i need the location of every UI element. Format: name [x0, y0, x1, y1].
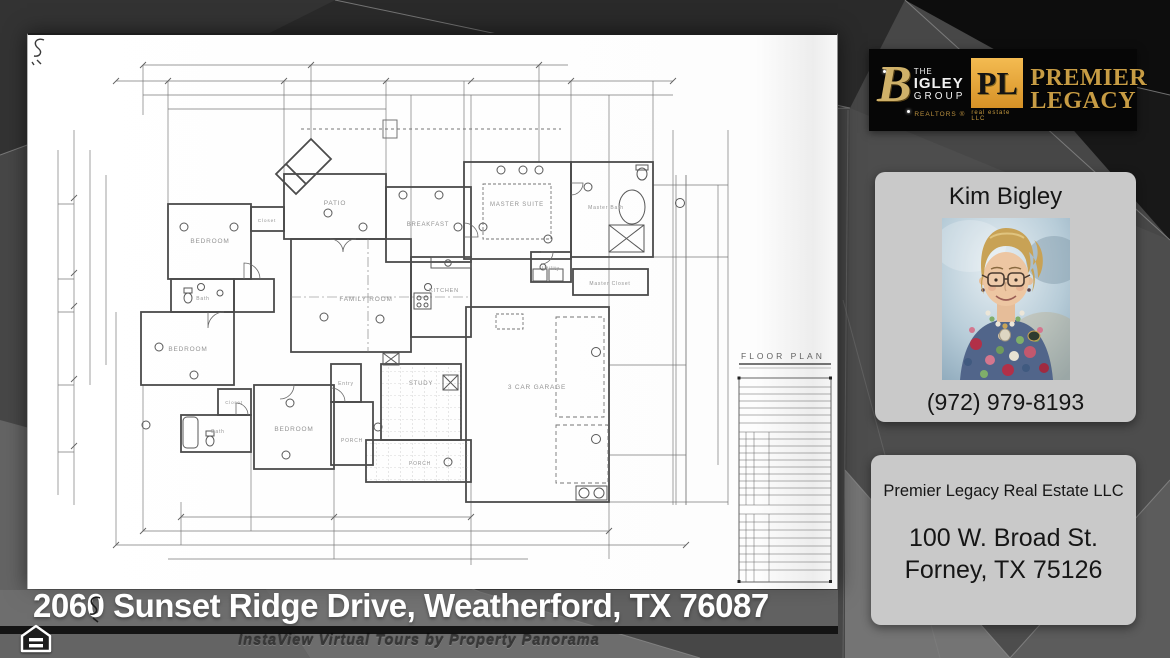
room-label: BEDROOM	[190, 238, 229, 245]
premier-legacy-monogram: PL real estate LLC	[971, 58, 1023, 122]
property-address: 2060 Sunset Ridge Drive, Weatherford, TX…	[33, 587, 769, 625]
room-label: Bath	[211, 429, 225, 435]
virtual-tour-frame: BEDROOM Closet Bath BEDROOM PATIO BREAKF…	[0, 0, 1170, 658]
agent-name: Kim Bigley	[875, 172, 1136, 211]
room-label: Closet	[258, 218, 276, 224]
room-label: Master Bath	[588, 205, 624, 211]
corner-mark-icon	[32, 39, 44, 65]
room-label: Entry	[338, 381, 354, 387]
watermark-text: InstaView Virtual Tours by Property Pano…	[0, 633, 838, 649]
agent-phone: (972) 979-8193	[875, 389, 1136, 416]
equal-housing-icon	[20, 624, 52, 654]
room-label: FAMILY ROOM	[339, 296, 392, 303]
agent-photo	[942, 218, 1070, 380]
room-label: KITCHEN	[429, 288, 459, 294]
room-label: PATIO	[324, 200, 347, 207]
room-label: Bath	[196, 296, 210, 302]
schedule-table: FLOOR PLAN	[738, 351, 833, 583]
premier-legacy-wordmark: PREMIER LEGACY	[1030, 67, 1147, 113]
pl-square: PL	[971, 58, 1023, 108]
room-label: Closet	[225, 400, 243, 405]
room-label: BEDROOM	[168, 346, 207, 353]
pl-letters: PL	[977, 65, 1018, 102]
room-label: STUDY	[409, 381, 433, 387]
room-label: 3 CAR GARAGE	[508, 384, 566, 391]
office-card: Premier Legacy Real Estate LLC 100 W. Br…	[871, 455, 1136, 625]
roof-lines	[301, 120, 561, 138]
room-label: BEDROOM	[274, 426, 313, 433]
pl-tagline: real estate LLC	[971, 110, 1023, 122]
sparkle-icon	[907, 110, 910, 113]
room-label: MASTER SUITE	[490, 202, 544, 208]
bigley-group-logo: B THE IGLEY GROUP REALTORS ®	[877, 62, 965, 119]
room-label: Master Closet	[589, 281, 630, 287]
address-bar: 2060 Sunset Ridge Drive, Weatherford, TX…	[0, 590, 838, 626]
realtors-label: REALTORS ®	[877, 111, 965, 118]
room-label: PORCH	[409, 461, 431, 467]
bigley-group: GROUP	[914, 92, 966, 102]
bigley-b-monogram: B	[877, 62, 912, 109]
floor-plan-sheet: BEDROOM Closet Bath BEDROOM PATIO BREAKF…	[27, 33, 838, 589]
premier-line2: LEGACY	[1030, 90, 1147, 113]
office-address-line1: 100 W. Broad St.	[871, 522, 1136, 554]
room-label: Utility	[542, 266, 560, 272]
dimension-lines	[58, 65, 728, 565]
room-label: PORCH	[341, 438, 363, 444]
premier-line1: PREMIER	[1030, 67, 1147, 90]
bigley-wordmark: THE IGLEY GROUP	[914, 68, 966, 102]
sparkle-icon	[883, 70, 886, 73]
office-company-name: Premier Legacy Real Estate LLC	[871, 455, 1136, 501]
room-label: BREAKFAST	[407, 222, 450, 228]
office-address-line2: Forney, TX 75126	[871, 554, 1136, 586]
agent-card: Kim Bigley	[875, 172, 1136, 422]
sheet-title: FLOOR PLAN	[741, 351, 825, 361]
bigley-igley: IGLEY	[914, 76, 966, 91]
brokerage-logo-banner: B THE IGLEY GROUP REALTORS ® PL real est…	[869, 49, 1137, 131]
corner-mark-icon	[84, 594, 110, 624]
